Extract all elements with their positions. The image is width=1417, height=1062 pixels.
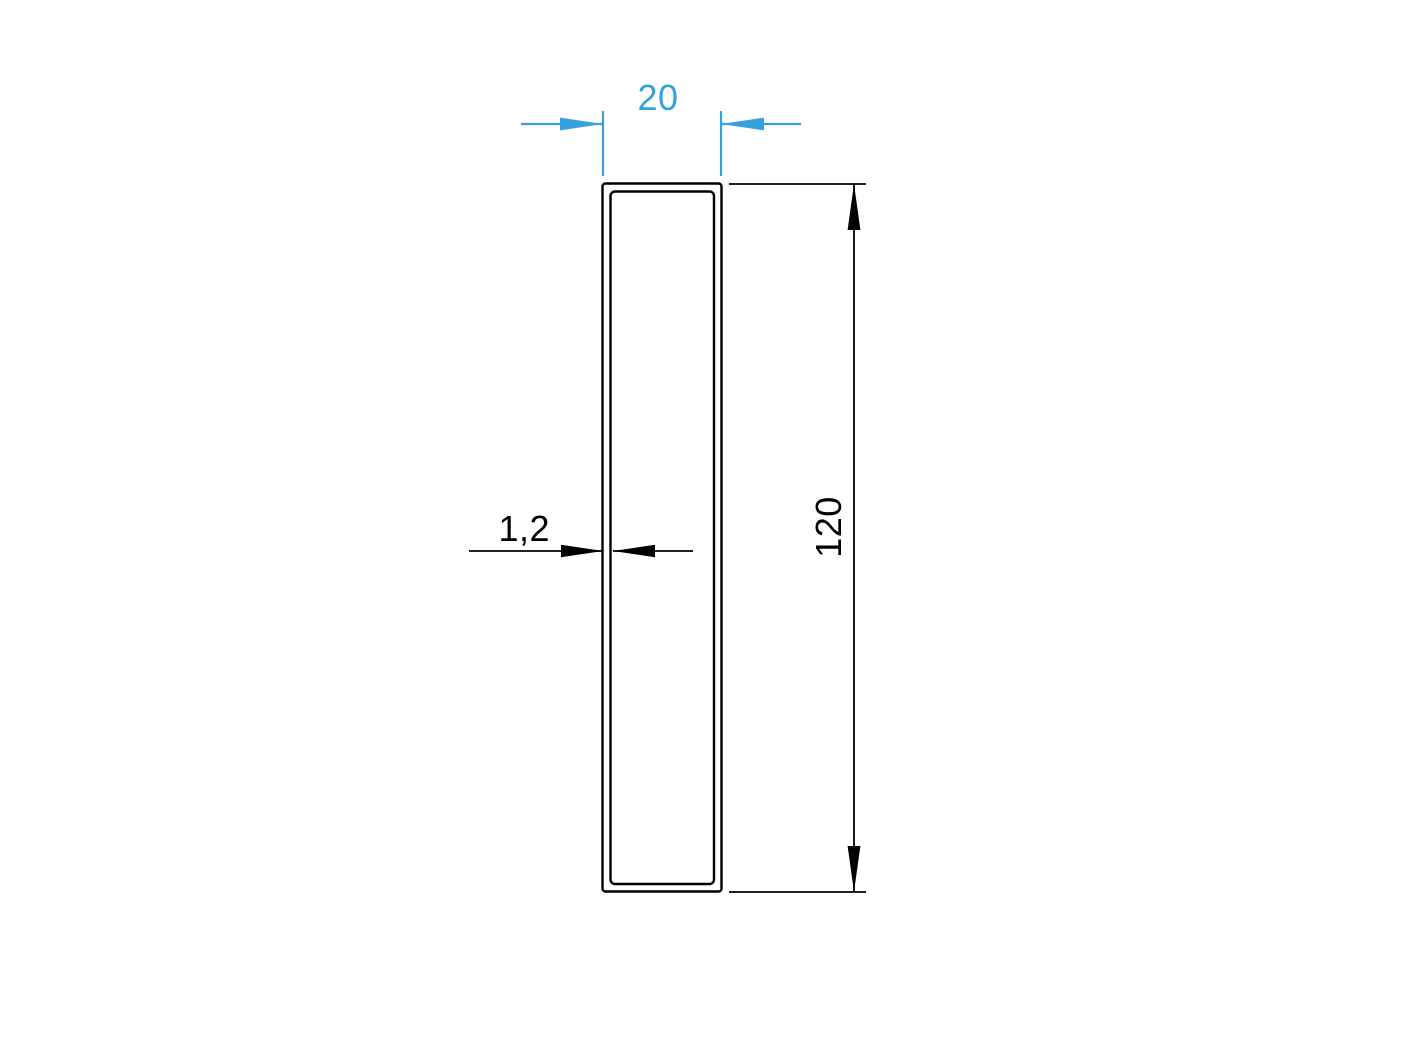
height-arrow-up-icon	[848, 184, 861, 230]
width-arrow-left-icon	[560, 118, 603, 131]
drawing-canvas: 20 120 1,2	[0, 0, 1417, 1062]
height-dimension-label: 120	[808, 496, 849, 558]
height-dimension: 120	[729, 184, 866, 892]
tube-cross-section-drawing: 20 120 1,2	[0, 0, 1417, 1062]
wall-thickness-dimension: 1,2	[469, 508, 693, 557]
wall-thickness-label: 1,2	[498, 508, 550, 549]
tube-profile	[603, 184, 722, 892]
width-dimension-label: 20	[637, 77, 678, 118]
tube-inner-edge	[611, 192, 715, 885]
thickness-arrow-left-icon	[613, 545, 655, 557]
thickness-arrow-right-icon	[561, 545, 603, 557]
height-arrow-down-icon	[848, 846, 861, 892]
tube-outer-edge	[603, 184, 722, 892]
width-arrow-right-icon	[721, 118, 764, 131]
width-dimension: 20	[521, 77, 801, 176]
